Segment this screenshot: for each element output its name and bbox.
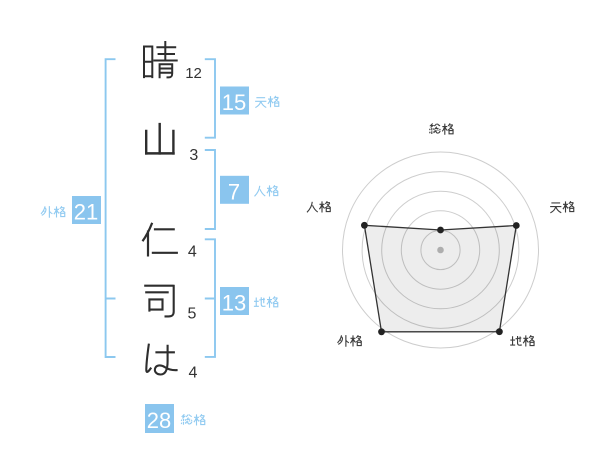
svg-text:28: 28 [147, 408, 171, 433]
svg-text:13: 13 [222, 291, 246, 316]
svg-text:21: 21 [74, 200, 98, 225]
svg-text:3: 3 [189, 147, 198, 164]
svg-text:4: 4 [189, 365, 198, 382]
svg-text:12: 12 [185, 65, 202, 82]
svg-text:15: 15 [222, 90, 246, 115]
svg-text:5: 5 [188, 306, 197, 323]
svg-text:4: 4 [188, 244, 197, 261]
svg-text:7: 7 [228, 179, 240, 204]
